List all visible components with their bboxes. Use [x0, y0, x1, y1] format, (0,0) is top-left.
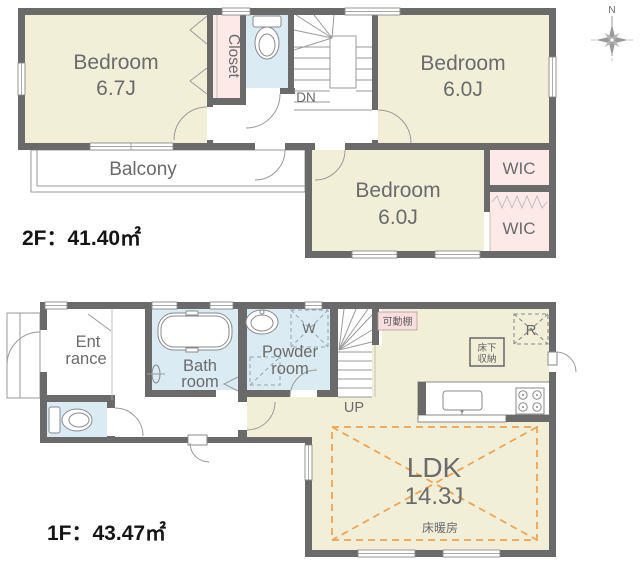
toilet-2f-icon — [253, 16, 281, 59]
compass-icon: N — [591, 5, 633, 61]
floorplan-page: Bedroom 6.7J Bedroom 6.0J Bedroom 6.0J C… — [0, 0, 640, 561]
movable-shelf-label: 可動棚 — [383, 315, 413, 328]
wic2-label: WIC — [502, 219, 535, 238]
bedroom2-size-label: 6.0J — [443, 78, 483, 101]
floor-1f-plan: Ent rance Bath room Powder room W UP 可動棚… — [7, 302, 576, 557]
floorplan-svg: Bedroom 6.7J Bedroom 6.0J Bedroom 6.0J C… — [0, 0, 640, 561]
ldk-size-label: 14.3J — [405, 483, 464, 510]
toilet-1f-icon — [49, 407, 92, 433]
floor-2f-plan: Bedroom 6.7J Bedroom 6.0J Bedroom 6.0J C… — [18, 8, 556, 258]
bedroom3-name-label: Bedroom — [355, 179, 440, 202]
ldk-sliver — [372, 345, 382, 397]
bedroom2-name-label: Bedroom — [420, 52, 505, 75]
compass-north-label: N — [608, 5, 615, 16]
floor-storage-label-1: 床下 — [477, 342, 496, 354]
wic1-label: WIC — [502, 159, 535, 178]
bathtub-icon — [158, 311, 232, 352]
back-door-leaf — [188, 435, 207, 445]
area-1f-label: 1F：43.47㎡ — [47, 521, 166, 545]
bedroom1-name-label: Bedroom — [73, 51, 158, 74]
stairs-1f — [338, 309, 375, 397]
bath-label-2: room — [181, 373, 219, 391]
entrance-label-1: Ent — [76, 333, 101, 351]
stairs-dn-label: DN — [296, 90, 316, 105]
bedroom3-size-label: 6.0J — [378, 206, 418, 229]
entrance-label-2: rance — [65, 350, 106, 368]
kitchen-door-leaf — [548, 352, 557, 365]
powder-label-2: room — [271, 360, 309, 378]
ldk-corridor — [247, 397, 312, 437]
floor-storage-label-2: 収納 — [477, 353, 496, 365]
washer-label: W — [302, 320, 316, 336]
powder-label-1: Powder — [262, 343, 318, 361]
ldk-name-label: LDK — [407, 452, 462, 483]
bedroom1-size-label: 6.7J — [96, 77, 136, 100]
porch-outline — [7, 313, 40, 398]
sink-icon — [246, 310, 278, 334]
floor-heating-label: 床暖房 — [422, 520, 458, 535]
stairs-up-label: UP — [344, 400, 364, 416]
area-2f-label: 2F：41.40㎡ — [22, 226, 141, 250]
balcony-label: Balcony — [109, 159, 177, 180]
closet-label: Closet — [225, 34, 242, 79]
fridge-label: R — [526, 322, 537, 339]
